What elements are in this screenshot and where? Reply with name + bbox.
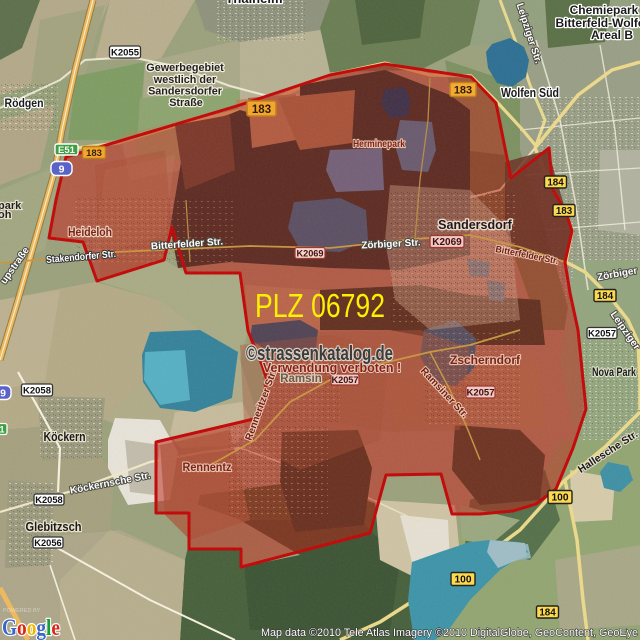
svg-text:183: 183: [252, 104, 271, 116]
svg-text:Straße: Straße: [169, 97, 203, 109]
svg-text:183: 183: [556, 206, 573, 217]
svg-text:E51: E51: [58, 145, 76, 156]
svg-text:K2057: K2057: [467, 388, 495, 399]
svg-text:1: 1: [0, 425, 5, 435]
svg-text:K2055: K2055: [111, 48, 140, 59]
svg-text:Verwendung verboten !: Verwendung verboten !: [263, 361, 401, 375]
svg-text:K2058: K2058: [23, 386, 51, 397]
svg-text:K2057: K2057: [588, 329, 616, 340]
svg-text:K2056: K2056: [34, 538, 61, 548]
svg-text:Glebitzsch: Glebitzsch: [26, 520, 82, 534]
svg-text:9: 9: [0, 388, 6, 400]
svg-text:100: 100: [552, 493, 569, 504]
svg-text:Zscherndorf: Zscherndorf: [450, 353, 521, 367]
svg-text:Köckern: Köckern: [44, 430, 86, 444]
svg-text:K2058: K2058: [35, 495, 62, 505]
svg-text:Heideloh: Heideloh: [68, 225, 112, 239]
svg-text:183: 183: [454, 85, 472, 97]
svg-text:183: 183: [86, 148, 102, 159]
svg-text:Thalheim: Thalheim: [225, 0, 282, 6]
svg-text:100: 100: [455, 575, 472, 586]
svg-text:K2057: K2057: [331, 375, 358, 385]
svg-text:K2069: K2069: [432, 237, 462, 248]
svg-text:Wolfen Süd: Wolfen Süd: [501, 86, 559, 100]
svg-text:Sandersdorf: Sandersdorf: [438, 218, 512, 232]
svg-text:Google: Google: [2, 615, 60, 640]
svg-text:oh: oh: [0, 209, 12, 221]
svg-text:Sandersdorfer: Sandersdorfer: [148, 86, 223, 98]
svg-text:Rennentz: Rennentz: [183, 460, 232, 474]
svg-text:Gewerbegebiet: Gewerbegebiet: [146, 62, 224, 74]
svg-text:Chemiepark: Chemiepark: [570, 3, 639, 17]
svg-text:184: 184: [539, 608, 556, 619]
svg-text:westlich der: westlich der: [153, 74, 217, 86]
svg-text:Rödgen: Rödgen: [5, 96, 44, 110]
svg-text:Herminepark: Herminepark: [353, 139, 405, 150]
svg-text:Map data ©2010 Tele Atlas Ima: Map data ©2010 Tele Atlas Imagery ©2010 …: [261, 627, 638, 639]
svg-text:POWERED BY: POWERED BY: [3, 608, 41, 614]
svg-text:K2069: K2069: [296, 249, 323, 259]
svg-text:PLZ 06792: PLZ 06792: [255, 287, 385, 324]
svg-text:Areal B: Areal B: [591, 28, 633, 42]
svg-text:184: 184: [547, 178, 564, 189]
svg-text:Nova Park: Nova Park: [592, 365, 636, 379]
svg-text:9: 9: [59, 164, 65, 176]
svg-text:184: 184: [597, 291, 614, 302]
